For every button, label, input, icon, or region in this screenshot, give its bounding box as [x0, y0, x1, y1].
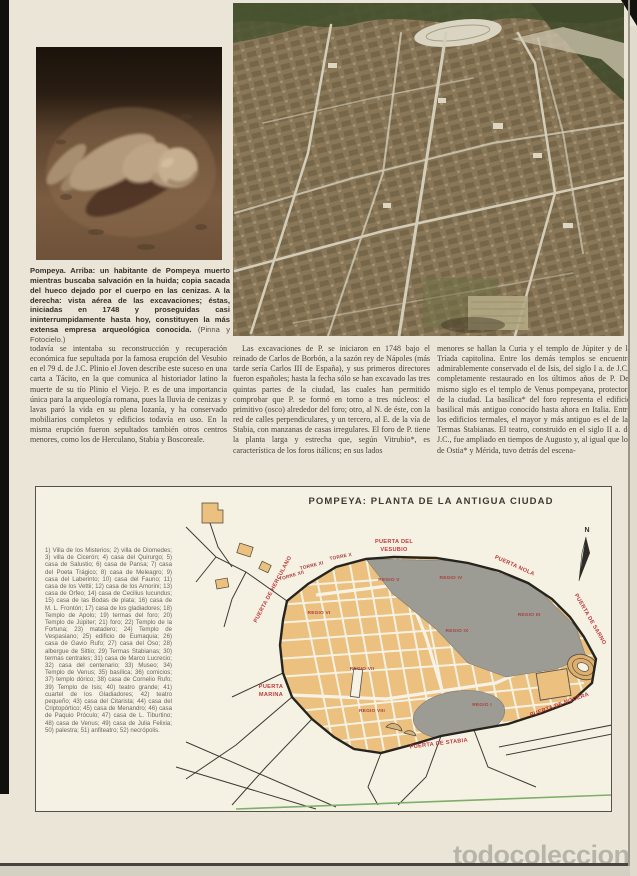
photo-caption: Pompeya. Arriba: un habitante de Pompeya… — [30, 266, 230, 345]
gate-vesubio-label-1: PUERTA DEL — [375, 539, 413, 545]
scan-surface-strip — [0, 866, 637, 876]
aerial-photo — [233, 3, 624, 336]
caption-text: Pompeya. Arriba: un habitante de Pompeya… — [30, 266, 230, 334]
city-blocks — [266, 542, 606, 767]
regio-i-label: REGIO I — [472, 702, 492, 708]
regio-viii-label: REGIO VIII — [359, 708, 385, 714]
victim-cast-photo — [36, 47, 222, 260]
north-arrow-icon — [579, 537, 590, 581]
victim-cast-illustration — [36, 47, 222, 260]
map-legend: 1) Villa de los Misterios; 2) villa de D… — [45, 547, 172, 734]
magazine-page: Pompeya. Arriba: un habitante de Pompeya… — [0, 0, 637, 876]
regio-vi-label: REGIO VI — [308, 610, 331, 616]
regio-vii-label: REGIO VII — [350, 666, 375, 672]
aerial-view-illustration — [233, 3, 624, 336]
map-panel: N PUERTA DEL VESUBIO PUERTA DE HERCULANO… — [35, 486, 612, 812]
book-spine-shadow — [0, 0, 9, 794]
regio-v-label: REGIO V — [378, 577, 400, 583]
regio-iii-label: REGIO III — [518, 612, 541, 618]
gate-marina-label-1: PUERTA — [259, 684, 283, 690]
gate-marina-label-2: MARINA — [259, 692, 283, 698]
tower-x-label: TORRE X — [329, 552, 353, 562]
regio-iv-label: REGIO IV — [440, 575, 464, 581]
article-column-1: todavía se intentaba su reconstrucción y… — [30, 344, 227, 482]
regio-ix-label: REGIO IX — [446, 628, 470, 634]
article-column-2: Las excavaciones de P. se iniciaron en 1… — [233, 344, 430, 482]
suburban-villas — [202, 503, 271, 589]
north-label: N — [584, 527, 589, 534]
scan-right-strip — [630, 26, 637, 876]
map-title: POMPEYA: PLANTA DE LA ANTIGUA CIUDAD — [216, 496, 637, 507]
gate-vesubio-label-2: VESUBIO — [380, 547, 408, 553]
article-column-3: menores se hallan la Curia y el templo d… — [437, 344, 631, 482]
